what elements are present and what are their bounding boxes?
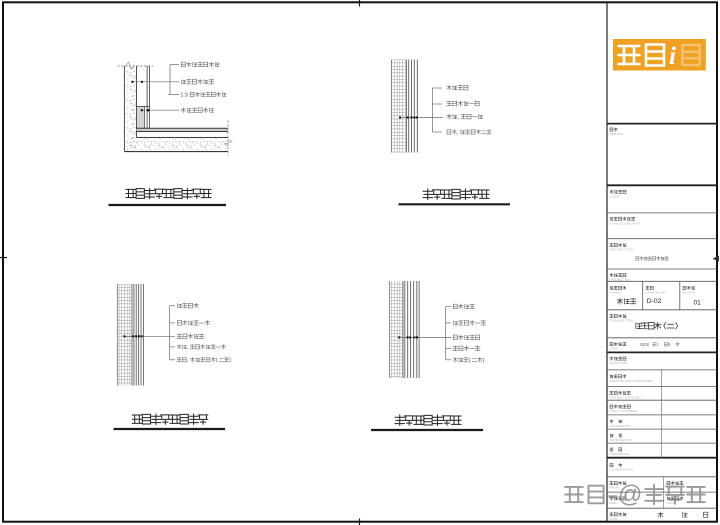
svg-text:@: @ <box>618 481 642 508</box>
svg-text:CLIENT: CLIENT <box>610 194 621 198</box>
svg-text:PHASE: PHASE <box>610 291 621 295</box>
svg-text:PROJECT NO.: PROJECT NO. <box>610 278 631 282</box>
svg-text:REMARK: REMARK <box>610 132 624 136</box>
svg-text:ARCHITECTURAL DESIGNER: ARCHITECTURAL DESIGNER <box>610 379 654 383</box>
svg-text:DRAWING TITLE: DRAWING TITLE <box>610 319 634 323</box>
svg-text:COORDINATION: COORDINATION <box>610 468 634 472</box>
svg-text:2008: 2008 <box>640 342 650 347</box>
svg-text:DRAWING NO.: DRAWING NO. <box>646 291 667 295</box>
svg-text:PROF. IN CHARGE: PROF. IN CHARGE <box>610 409 637 413</box>
svg-text:EDITION: EDITION <box>683 291 696 295</box>
svg-text:PROJECT ARCHITECT: PROJECT ARCHITECT <box>610 396 643 400</box>
svg-text:,: , <box>457 130 458 136</box>
svg-text:): ) <box>483 358 485 364</box>
svg-text:): ) <box>229 358 231 364</box>
svg-text:APPROVED BY: APPROVED BY <box>610 438 632 442</box>
svg-text:PROJECT TITLE: PROJECT TITLE <box>610 248 634 252</box>
svg-text:i: i <box>669 43 676 70</box>
svg-text:DESIGNED BY: DESIGNED BY <box>610 424 631 428</box>
svg-text:CHECKED BY: CHECKED BY <box>610 452 630 456</box>
svg-text:DATE: DATE <box>610 517 618 521</box>
svg-text:01: 01 <box>694 300 702 307</box>
svg-text:CO-DESIGNED WITH: CO-DESIGNED WITH <box>610 221 641 225</box>
svg-text:,: , <box>187 345 188 351</box>
svg-text:1:3: 1:3 <box>181 92 188 98</box>
svg-text:(: ( <box>216 358 218 364</box>
svg-text:DATE: DATE <box>610 347 618 351</box>
svg-text:(: ( <box>469 358 471 364</box>
svg-text:,: , <box>187 358 188 364</box>
svg-text:SIGNATURE: SIGNATURE <box>610 361 628 365</box>
svg-text:D-02: D-02 <box>647 298 662 305</box>
